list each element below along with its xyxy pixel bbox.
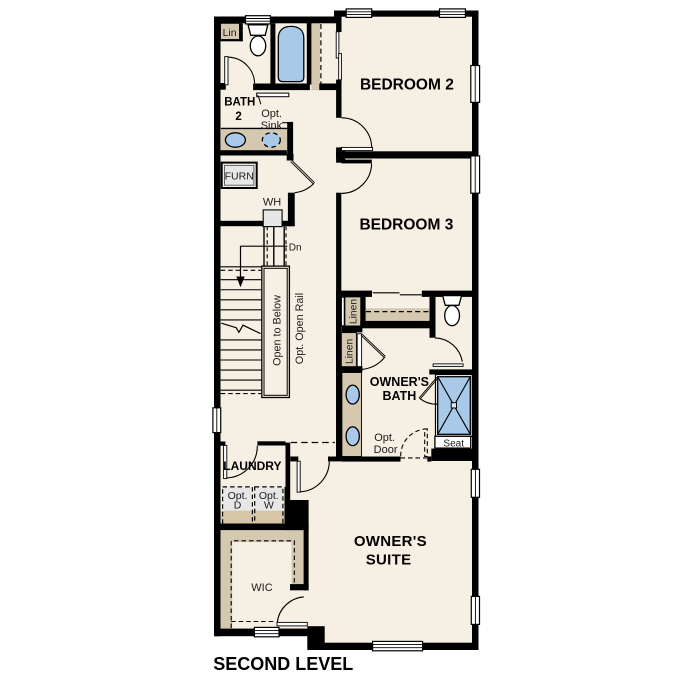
svg-text:Sink: Sink: [261, 120, 283, 132]
svg-text:Opt.: Opt.: [261, 108, 282, 120]
svg-text:Linen: Linen: [349, 299, 360, 324]
svg-text:W: W: [264, 499, 274, 511]
svg-text:FURN: FURN: [225, 171, 254, 183]
svg-text:OWNER'S: OWNER'S: [354, 533, 427, 550]
svg-text:Opt. Open Rail: Opt. Open Rail: [294, 293, 306, 364]
svg-text:BEDROOM 3: BEDROOM 3: [359, 217, 453, 234]
svg-text:BEDROOM 2: BEDROOM 2: [360, 77, 454, 94]
svg-text:Open to Below: Open to Below: [272, 295, 284, 366]
svg-text:BATH: BATH: [383, 389, 417, 403]
svg-text:Dn: Dn: [289, 242, 302, 253]
svg-text:Door: Door: [374, 444, 398, 456]
svg-text:2: 2: [235, 111, 241, 123]
svg-text:OWNER'S: OWNER'S: [370, 375, 429, 389]
svg-text:SECOND LEVEL: SECOND LEVEL: [213, 654, 353, 674]
svg-text:Linen: Linen: [345, 339, 356, 364]
svg-text:WH: WH: [263, 197, 281, 209]
svg-text:LAUNDRY: LAUNDRY: [223, 459, 281, 473]
svg-text:D: D: [234, 499, 242, 511]
svg-text:Seat: Seat: [443, 439, 464, 450]
svg-text:BATH: BATH: [224, 97, 255, 109]
svg-text:Opt.: Opt.: [374, 432, 395, 444]
svg-text:SUITE: SUITE: [366, 552, 412, 569]
svg-text:WIC: WIC: [251, 582, 272, 594]
svg-text:Lin: Lin: [223, 27, 237, 39]
